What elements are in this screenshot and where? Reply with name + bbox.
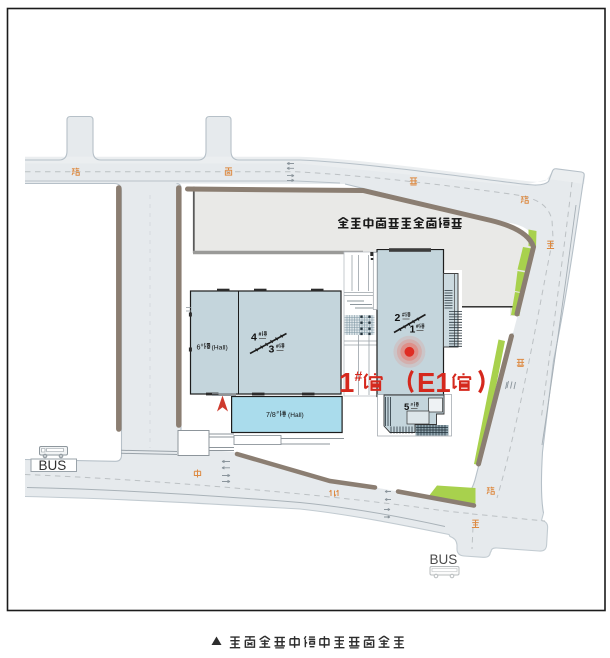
svg-text:2: 2 xyxy=(395,312,401,324)
svg-text:BUS: BUS xyxy=(39,458,67,473)
svg-text:BUS: BUS xyxy=(430,552,458,567)
svg-text:(Hall): (Hall) xyxy=(288,412,304,419)
svg-text:#: # xyxy=(416,324,419,330)
svg-text:#: # xyxy=(411,402,414,407)
svg-text:(Hall): (Hall) xyxy=(212,344,228,351)
svg-text:E1: E1 xyxy=(417,367,451,398)
svg-text:7/8: 7/8 xyxy=(266,412,276,419)
svg-text:4: 4 xyxy=(251,332,257,344)
svg-text:#: # xyxy=(259,332,262,338)
svg-text:#: # xyxy=(201,343,204,348)
svg-text:1: 1 xyxy=(339,367,354,398)
svg-text:3: 3 xyxy=(269,344,275,356)
svg-text:#: # xyxy=(402,313,405,319)
svg-text:5: 5 xyxy=(404,402,410,413)
svg-text:#: # xyxy=(276,344,279,350)
svg-text:#: # xyxy=(355,368,363,384)
